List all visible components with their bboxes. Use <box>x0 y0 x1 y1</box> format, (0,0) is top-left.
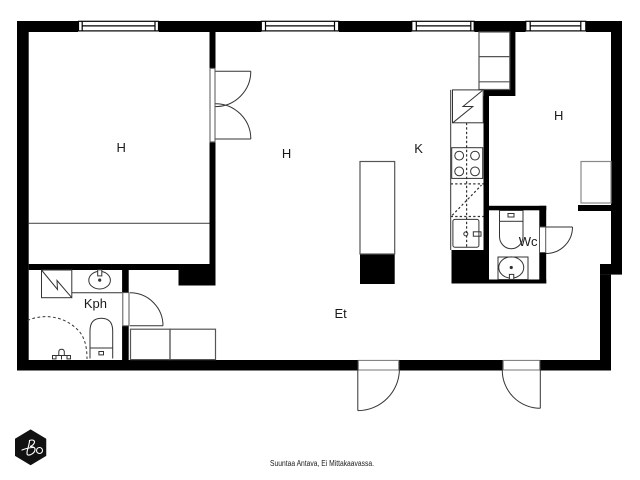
svg-text:H: H <box>282 146 291 161</box>
svg-text:Kph: Kph <box>84 296 107 311</box>
svg-text:H: H <box>117 140 126 155</box>
svg-text:H: H <box>554 108 563 123</box>
svg-text:K: K <box>414 141 423 156</box>
svg-text:Wc: Wc <box>519 234 538 249</box>
svg-text:Suuntaa Antava, Ei Mittakaavas: Suuntaa Antava, Ei Mittakaavassa. <box>270 459 374 468</box>
svg-text:Et: Et <box>334 306 347 321</box>
